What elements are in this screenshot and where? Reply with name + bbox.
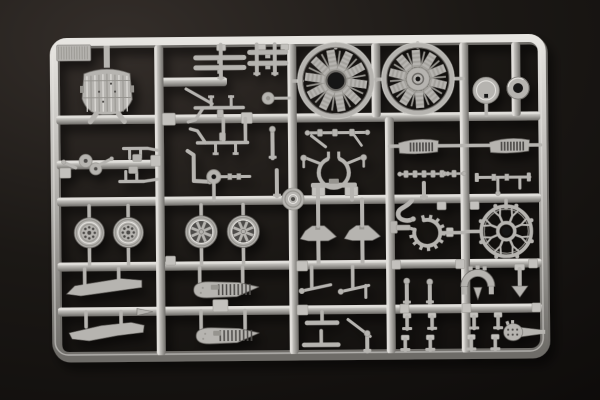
- photo-stage: [0, 0, 600, 400]
- part-strip-part-a: [193, 44, 246, 79]
- part-wheel-a: [74, 206, 105, 265]
- part-t-post-c: [400, 335, 410, 351]
- part-bracket-lump-b: [344, 199, 381, 262]
- part-grenade-part: [504, 320, 546, 341]
- part-wheel-d: [227, 204, 260, 263]
- part-stick-a: [268, 126, 276, 159]
- part-toothed-ring: [409, 214, 463, 251]
- part-machine-gun-b: [190, 118, 247, 155]
- part-float-b: [196, 310, 259, 344]
- part-t-post-f: [493, 312, 503, 329]
- part-hub-disc: [282, 188, 304, 210]
- part-wheel-c: [185, 205, 218, 264]
- part-radial-engine-rear: [376, 42, 464, 115]
- part-t-post-h: [490, 334, 500, 350]
- part-stick-b: [273, 170, 281, 197]
- part-ribbed-plate-b: [464, 138, 540, 153]
- part-rocker-linkage: [305, 129, 370, 147]
- part-t-post-d: [425, 335, 435, 351]
- part-t-post-a: [402, 313, 412, 330]
- part-sprue-letter-tab: [57, 45, 91, 61]
- part-lever-d: [338, 266, 369, 297]
- part-dart-post: [512, 264, 528, 297]
- part-propeller-blade-a: [67, 268, 142, 296]
- part-knob-post-b: [426, 279, 434, 304]
- part-ribbed-plate-a: [389, 139, 464, 154]
- part-small-disc: [262, 92, 290, 104]
- part-cowl-disc: [473, 77, 499, 115]
- part-float-a: [194, 267, 259, 298]
- part-wheel-b: [113, 205, 144, 264]
- part-knob-post-a: [403, 278, 411, 304]
- part-angle-bracket: [390, 221, 410, 233]
- part-stub-post: [420, 183, 428, 199]
- part-bead-chain-a: [398, 170, 447, 177]
- part-shoe-bar-b: [302, 331, 341, 348]
- part-radial-engine-front: [293, 42, 377, 119]
- part-roller-wheel: [207, 169, 250, 199]
- part-cowl-ring: [507, 77, 529, 99]
- part-axle-assembly: [475, 172, 531, 195]
- part-stick-c: [363, 330, 371, 352]
- sprue: [53, 37, 546, 358]
- sprue-photo: [0, 0, 600, 400]
- part-t-post-b: [427, 313, 437, 330]
- part-bracket-lump-a: [300, 200, 337, 263]
